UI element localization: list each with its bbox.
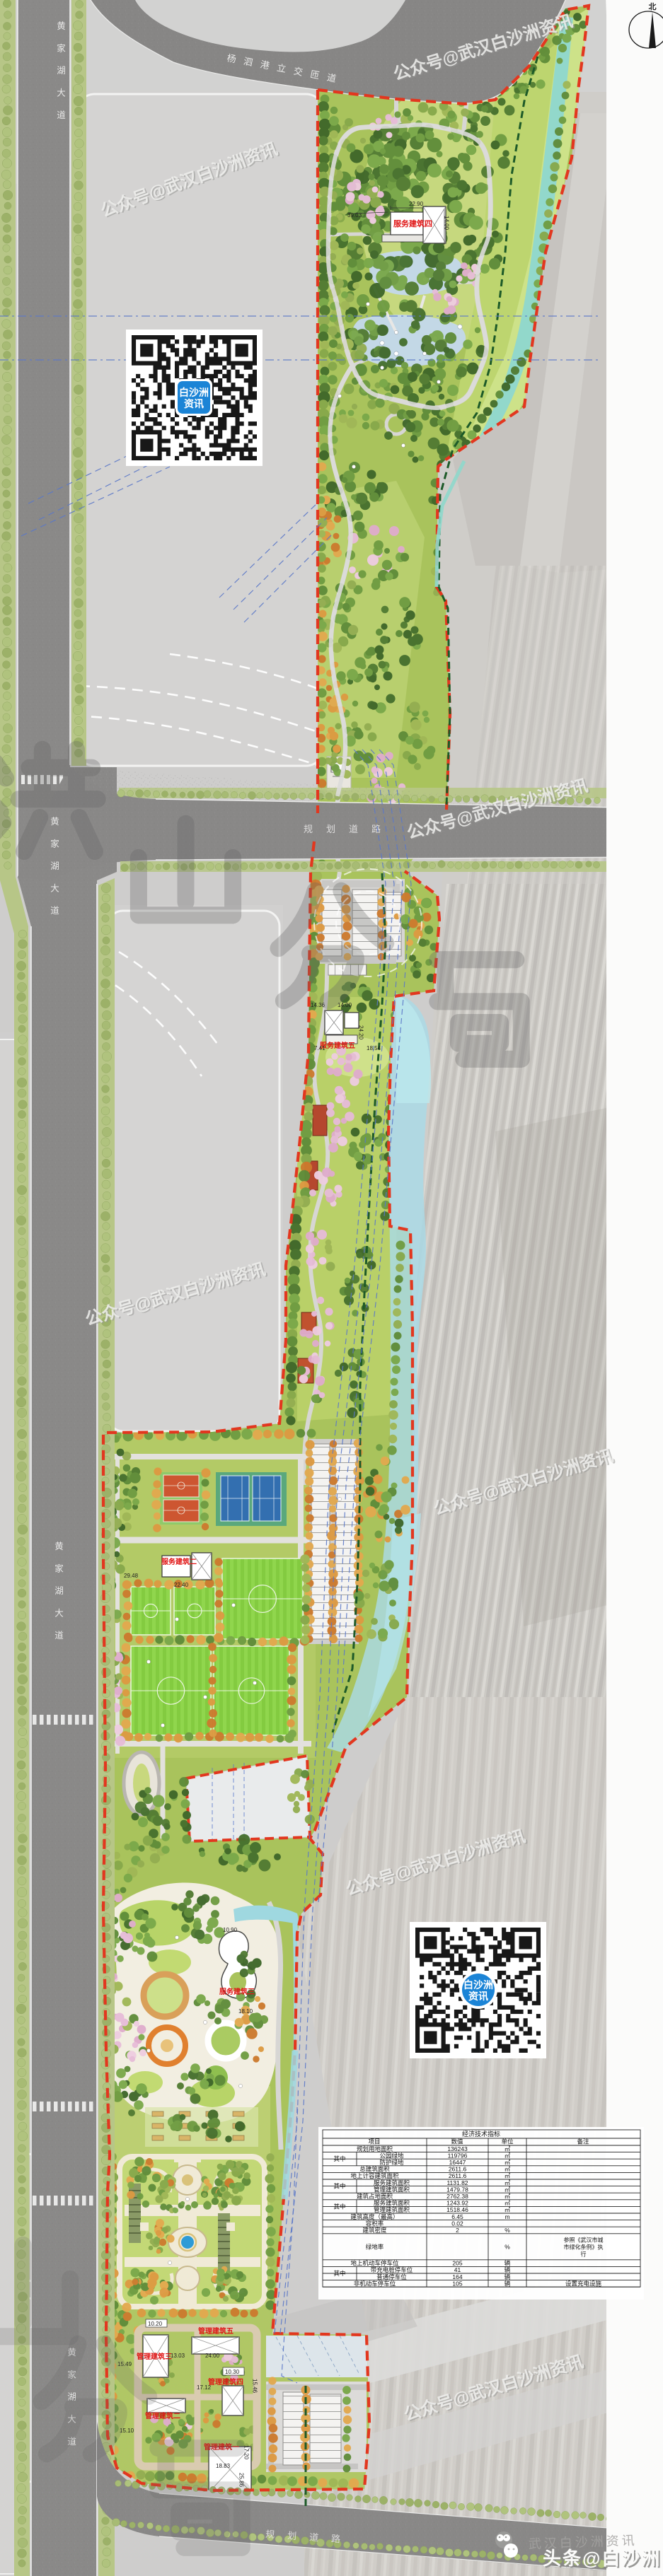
svg-text:黄家湖大道: 黄家湖大道 — [49, 817, 59, 928]
svg-text:㎡: ㎡ — [505, 2152, 511, 2159]
svg-text:18.83: 18.83 — [216, 2463, 231, 2469]
svg-text:数值: 数值 — [451, 2138, 463, 2145]
svg-text:其中: 其中 — [333, 2203, 345, 2210]
svg-text:辆: 辆 — [505, 2273, 511, 2280]
svg-text:㎡: ㎡ — [505, 2145, 511, 2152]
svg-text:205: 205 — [452, 2260, 462, 2267]
svg-text:㎡: ㎡ — [505, 2206, 511, 2213]
svg-text:㎡: ㎡ — [505, 2159, 511, 2166]
svg-text:头条@白沙洲: 头条@白沙洲 — [543, 2548, 661, 2569]
svg-text:2: 2 — [456, 2227, 459, 2234]
svg-text:164: 164 — [452, 2273, 462, 2280]
svg-text:绿地率: 绿地率 — [366, 2243, 384, 2250]
svg-text:服务建筑面积: 服务建筑面积 — [374, 2200, 410, 2207]
svg-text:资讯: 资讯 — [468, 1991, 488, 2002]
svg-text:%: % — [505, 2243, 510, 2250]
svg-text:经济技术指标: 经济技术指标 — [462, 2130, 500, 2138]
svg-text:10.90: 10.90 — [223, 1927, 238, 1933]
svg-text:建筑密度: 建筑密度 — [362, 2227, 387, 2234]
svg-text:119796: 119796 — [448, 2152, 468, 2159]
svg-text:非机动车停车位: 非机动车停车位 — [354, 2280, 396, 2287]
svg-text:服务建筑三: 服务建筑三 — [219, 1987, 255, 1996]
svg-text:资讯: 资讯 — [184, 398, 204, 409]
svg-text:㎡: ㎡ — [505, 2166, 511, 2173]
svg-text:15.46: 15.46 — [252, 2379, 258, 2394]
svg-text:㎡: ㎡ — [505, 2186, 511, 2193]
svg-text:黄家湖大道: 黄家湖大道 — [53, 1541, 63, 1653]
svg-text:总建筑面积: 总建筑面积 — [359, 2166, 390, 2173]
svg-text:普通停车位: 普通停车位 — [376, 2273, 407, 2280]
svg-text:㎡: ㎡ — [505, 2172, 511, 2179]
svg-text:其中: 其中 — [333, 2270, 345, 2277]
svg-text:7.41: 7.41 — [314, 1045, 325, 1051]
svg-text:地上计容建筑面积: 地上计容建筑面积 — [350, 2172, 399, 2179]
svg-text:建筑占地面积: 建筑占地面积 — [357, 2193, 393, 2200]
svg-text:防护绿地: 防护绿地 — [379, 2159, 404, 2166]
svg-text:白沙洲: 白沙洲 — [463, 1979, 493, 1991]
svg-text:市绿化条例》执: 市绿化条例》执 — [564, 2243, 604, 2250]
svg-text:行: 行 — [581, 2250, 587, 2257]
svg-text:参照《武汉市城: 参照《武汉市城 — [564, 2236, 604, 2243]
svg-text:41: 41 — [454, 2266, 461, 2273]
svg-text:6.45: 6.45 — [451, 2213, 463, 2220]
svg-text:㎡: ㎡ — [505, 2200, 511, 2207]
svg-text:规划道路: 规划道路 — [304, 824, 394, 834]
svg-text:黄家湖大道: 黄家湖大道 — [55, 21, 65, 133]
svg-text:辆: 辆 — [505, 2260, 511, 2267]
svg-text:m: m — [505, 2213, 509, 2220]
svg-text:1131.82: 1131.82 — [446, 2179, 468, 2186]
svg-text:24.20: 24.20 — [358, 1025, 364, 1040]
svg-text:白沙洲: 白沙洲 — [179, 387, 209, 398]
svg-text:服务建筑二: 服务建筑二 — [161, 1557, 197, 1566]
svg-text:18.10: 18.10 — [238, 2008, 253, 2015]
svg-text:容积率: 容积率 — [366, 2220, 384, 2227]
svg-text:备注: 备注 — [577, 2138, 589, 2145]
svg-text:规划用地面积: 规划用地面积 — [357, 2145, 393, 2152]
svg-text:29.48: 29.48 — [124, 1573, 139, 1579]
svg-text:服务建筑四: 服务建筑四 — [393, 218, 432, 228]
svg-text:管理建筑面积: 管理建筑面积 — [374, 2206, 410, 2213]
svg-text:管理建筑二: 管理建筑二 — [145, 2411, 180, 2420]
svg-text:管理建筑面积: 管理建筑面积 — [374, 2186, 410, 2193]
svg-text:公园绿地: 公园绿地 — [379, 2152, 404, 2159]
svg-text:136243: 136243 — [447, 2145, 468, 2152]
svg-text:1479.78: 1479.78 — [446, 2186, 468, 2193]
svg-text:建筑高度（最高）: 建筑高度（最高） — [350, 2213, 398, 2220]
svg-text:16447: 16447 — [449, 2159, 466, 2166]
svg-text:0.02: 0.02 — [451, 2220, 463, 2227]
svg-text:单位: 单位 — [501, 2138, 514, 2145]
svg-text:其中: 其中 — [333, 2183, 345, 2190]
svg-text:北: 北 — [649, 1, 657, 11]
svg-text:管理建筑五: 管理建筑五 — [198, 2326, 234, 2336]
svg-text:㎡: ㎡ — [505, 2179, 511, 2186]
svg-text:13.03: 13.03 — [171, 2353, 185, 2359]
svg-text:22.90: 22.90 — [409, 201, 424, 207]
svg-text:2762.38: 2762.38 — [446, 2193, 468, 2200]
svg-text:辆: 辆 — [505, 2266, 511, 2273]
svg-text:管理建筑四: 管理建筑四 — [208, 2377, 243, 2386]
svg-text:其中: 其中 — [333, 2155, 345, 2162]
svg-text:管理建筑三: 管理建筑三 — [137, 2352, 172, 2361]
svg-text:辆: 辆 — [505, 2280, 511, 2287]
svg-text:2611.6: 2611.6 — [449, 2166, 467, 2173]
svg-text:带充电桩停车位: 带充电桩停车位 — [371, 2266, 413, 2273]
svg-text:项目: 项目 — [368, 2138, 380, 2145]
svg-text:17.12: 17.12 — [197, 2384, 212, 2391]
svg-text:10.30: 10.30 — [225, 2369, 240, 2375]
svg-text:1243.92: 1243.92 — [446, 2200, 468, 2207]
svg-text:设置充电设施: 设置充电设施 — [565, 2280, 602, 2287]
svg-text:地上机动车停车位: 地上机动车停车位 — [350, 2260, 399, 2267]
svg-text:22.40: 22.40 — [174, 1582, 189, 1588]
svg-text:㎡: ㎡ — [505, 2193, 511, 2200]
svg-text:10.20: 10.20 — [148, 2321, 163, 2327]
svg-text:%: % — [505, 2227, 510, 2234]
svg-text:105: 105 — [452, 2280, 462, 2287]
svg-text:18.54: 18.54 — [367, 1045, 381, 1051]
svg-text:服务建筑面积: 服务建筑面积 — [374, 2179, 410, 2186]
svg-text:2611.6: 2611.6 — [449, 2172, 467, 2179]
svg-text:1518.46: 1518.46 — [446, 2206, 468, 2213]
svg-text:24.00: 24.00 — [205, 2353, 220, 2359]
